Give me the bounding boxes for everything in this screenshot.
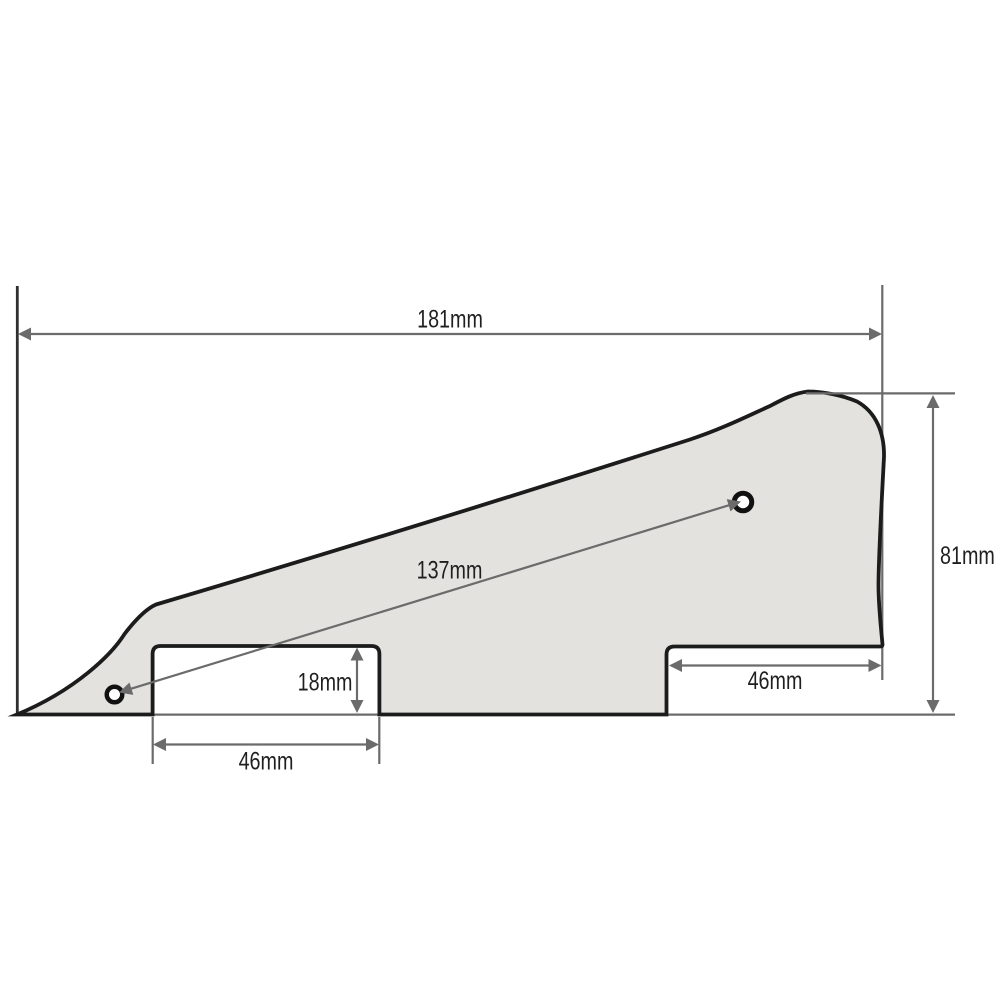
svg-text:181mm: 181mm bbox=[417, 305, 483, 333]
svg-text:46mm: 46mm bbox=[239, 747, 294, 775]
svg-text:18mm: 18mm bbox=[298, 668, 353, 696]
svg-text:137mm: 137mm bbox=[417, 556, 483, 584]
svg-text:81mm: 81mm bbox=[940, 542, 995, 570]
svg-text:46mm: 46mm bbox=[748, 667, 803, 695]
